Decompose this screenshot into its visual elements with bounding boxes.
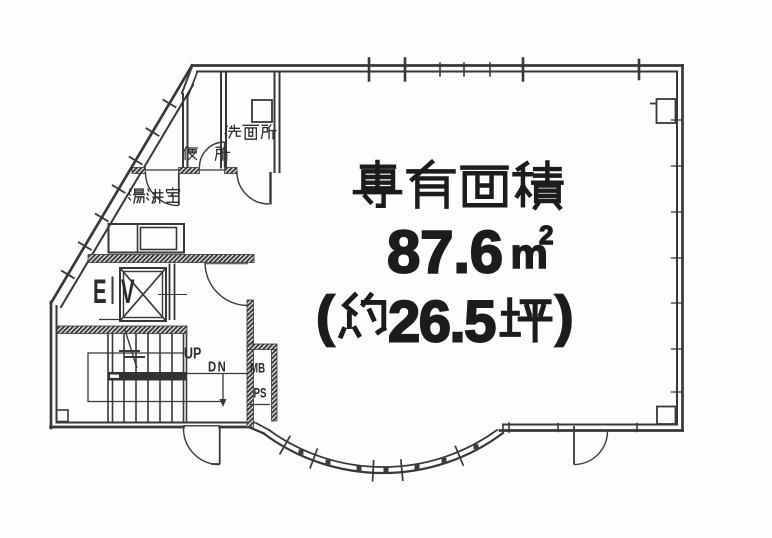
svg-text:87.6: 87.6 [387,219,503,286]
svg-text:): ) [555,284,574,347]
svg-text:26.5: 26.5 [388,290,495,355]
svg-text:DN: DN [208,358,227,375]
svg-text:2: 2 [539,220,553,250]
svg-text:MB: MB [250,361,265,376]
svg-text:(: ( [316,284,335,347]
svg-text:PS: PS [254,386,267,401]
svg-text:UP: UP [184,345,202,363]
svg-text:EV: EV [93,273,149,311]
